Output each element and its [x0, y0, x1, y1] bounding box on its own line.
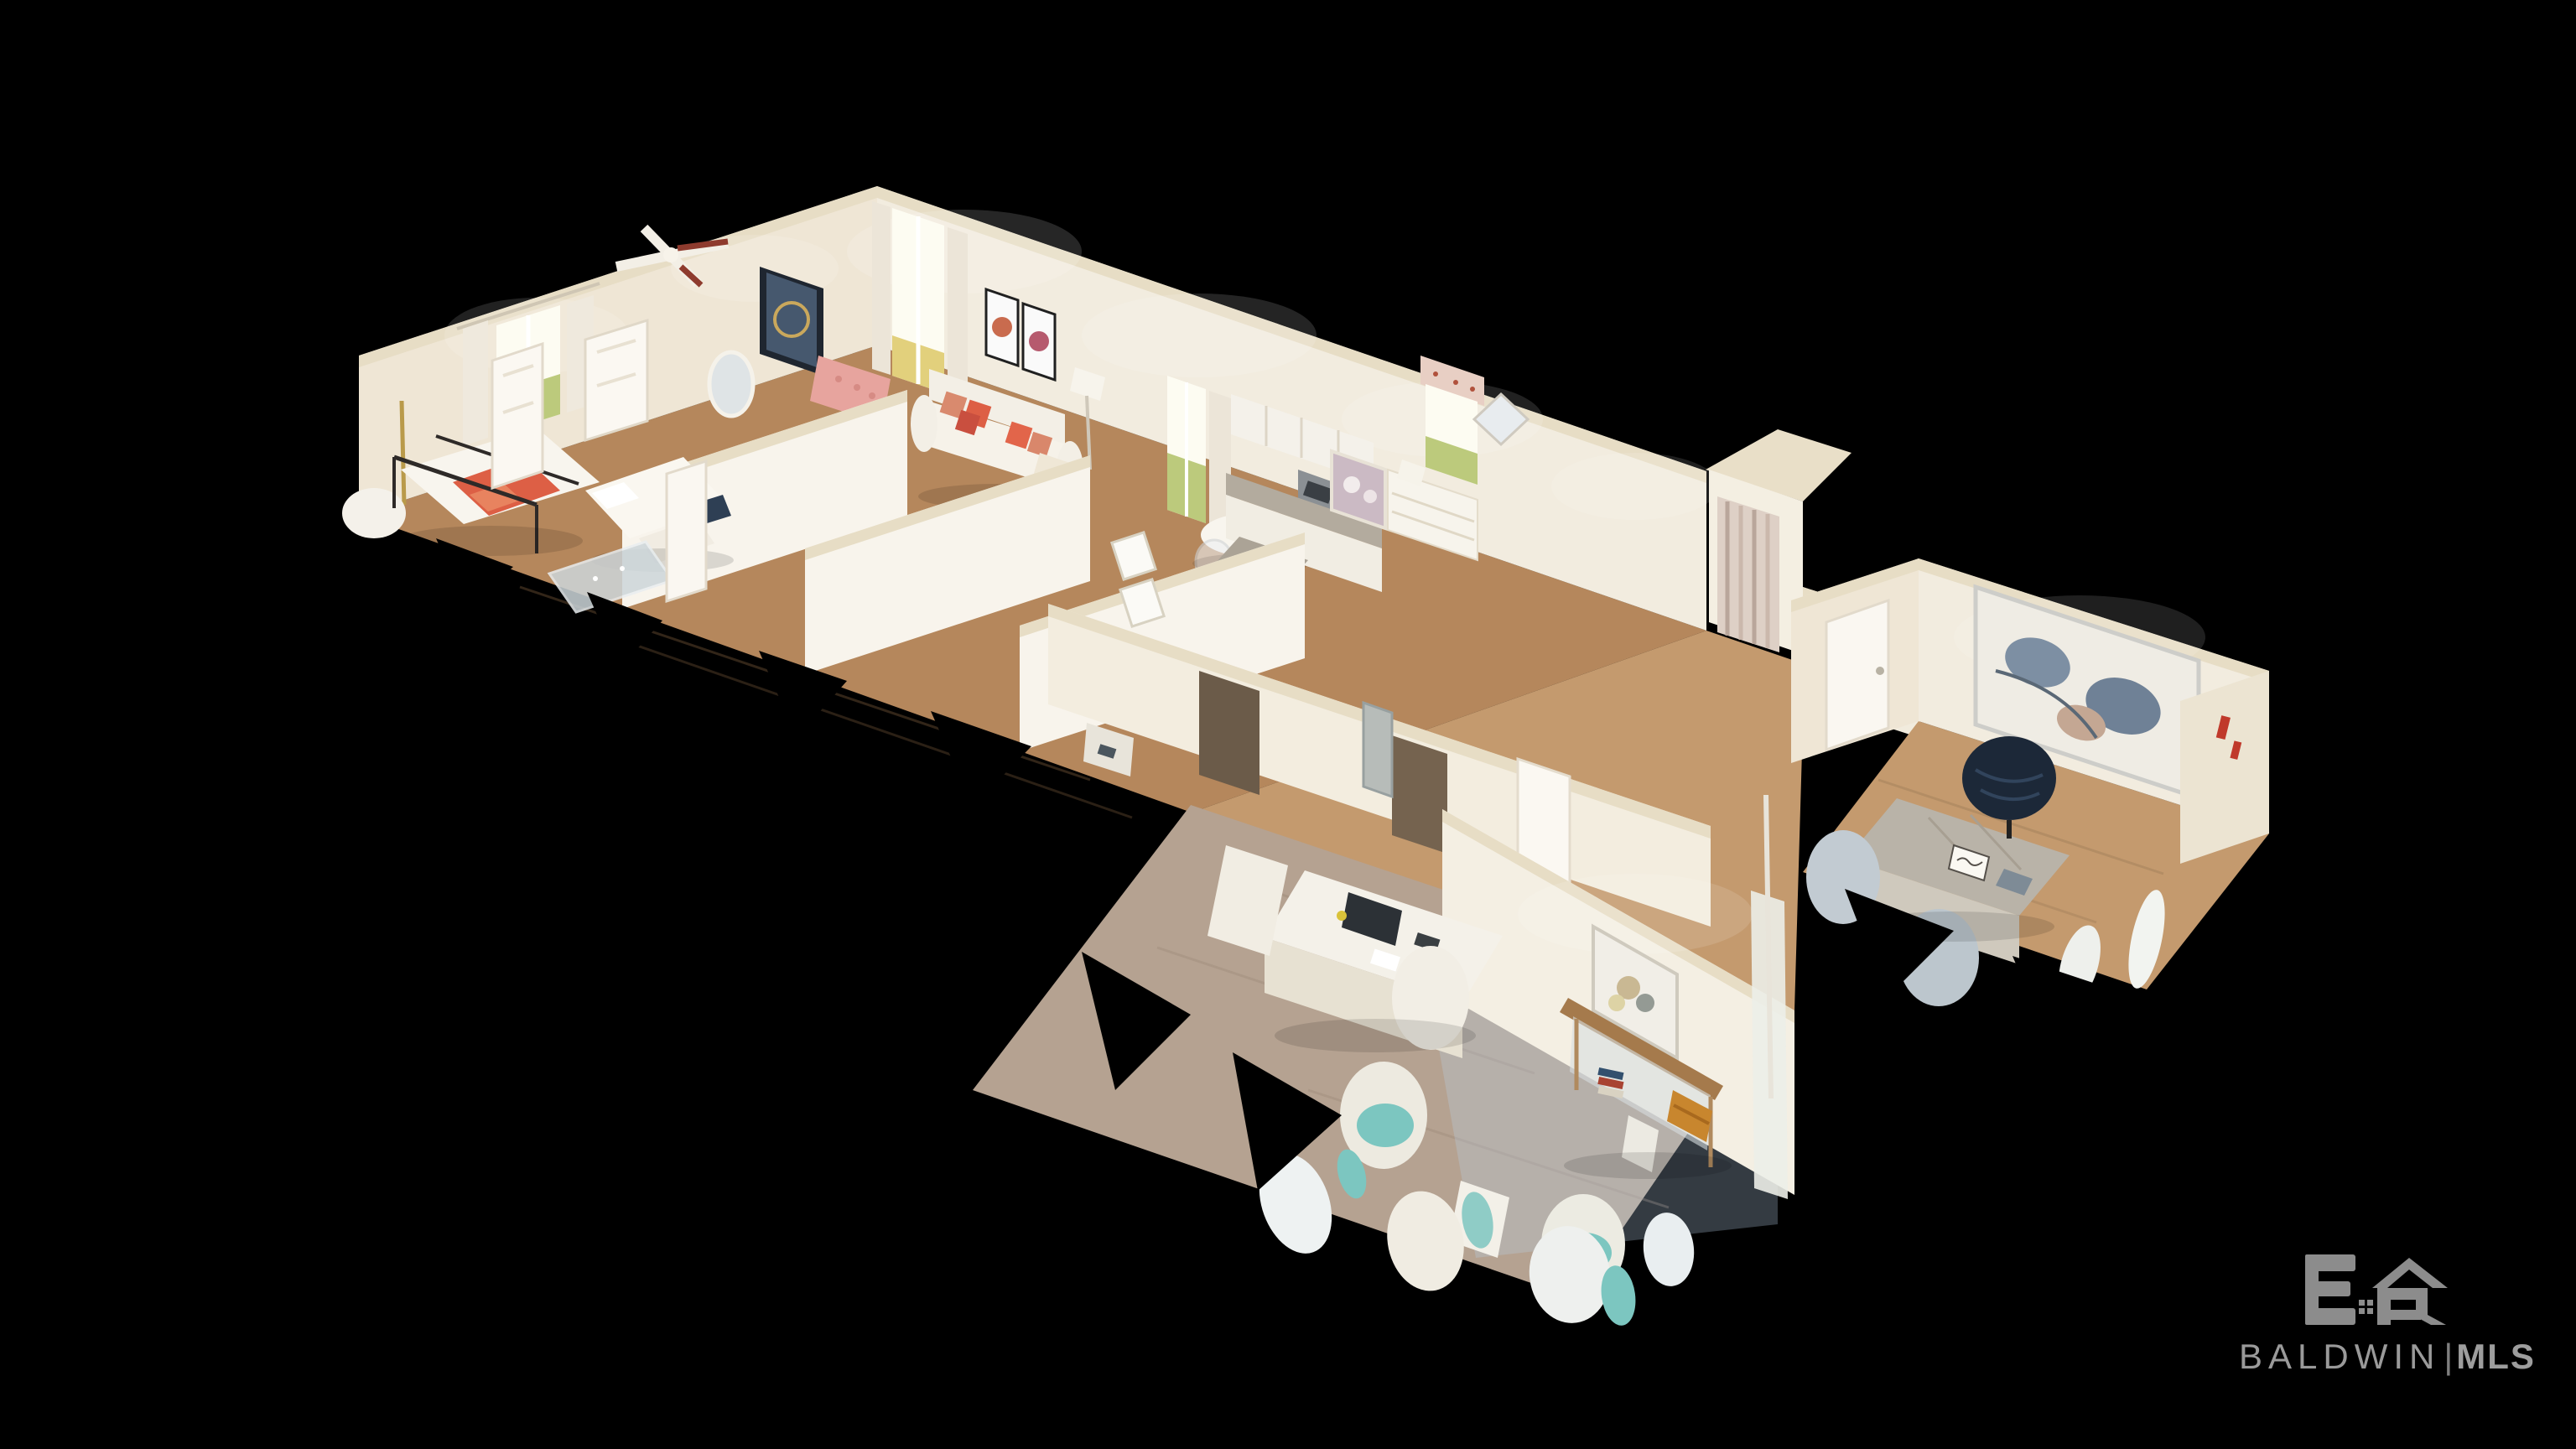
logo-b-bar: [2305, 1308, 2355, 1325]
brand-name: BALDWIN: [2239, 1337, 2440, 1376]
dollhouse-render: [0, 0, 2576, 1449]
room-office: [1791, 558, 2269, 1008]
gold-lamp-pole: [402, 401, 404, 505]
logo-window-pane: [2359, 1300, 2365, 1306]
wall-glow: [1551, 453, 1719, 520]
console-shadow: [1564, 1152, 1732, 1179]
valance-dot: [1453, 380, 1458, 385]
butterfly-1: [992, 317, 1012, 337]
standing-door: [667, 461, 706, 601]
valance-dot: [1433, 371, 1438, 377]
armchair-pattern: [835, 376, 842, 382]
bouquet-bloom: [1608, 995, 1625, 1011]
wall-glow: [1518, 874, 1753, 954]
logo-window-pane: [2359, 1308, 2365, 1314]
lounge-chair: [342, 488, 406, 538]
logo-roof: [2372, 1258, 2448, 1288]
fan-hub: [663, 247, 678, 262]
teal-chair-seat: [1357, 1104, 1414, 1147]
sofa-arm: [911, 395, 937, 452]
logo-window-pane: [2367, 1300, 2373, 1306]
floral-bloom: [1343, 476, 1360, 493]
logo-b-bar: [2305, 1254, 2355, 1271]
office-right-wall: [2180, 671, 2269, 864]
logo-window-pane: [2367, 1308, 2373, 1314]
electrical-panel: [1363, 703, 1392, 797]
hall-doorway: [1199, 671, 1259, 795]
door-knob: [1876, 667, 1884, 675]
executive-chair: [1962, 736, 2056, 820]
sticky-note: [1337, 911, 1347, 921]
living-curtain-left: [872, 201, 891, 375]
bed-shadow: [398, 526, 583, 556]
standing-door: [492, 344, 543, 488]
glass-sparkle: [620, 566, 625, 571]
brand-org: MLS: [2456, 1337, 2536, 1376]
curtain-panel-left: [463, 320, 488, 446]
armchair-pattern: [854, 384, 860, 391]
wall-mirror: [709, 352, 753, 416]
hall-doorway: [1392, 735, 1447, 854]
glass-sparkle: [593, 576, 598, 581]
butterfly-2: [1029, 331, 1049, 351]
baldwin-mls-watermark: BALDWIN|MLS: [2227, 1248, 2504, 1390]
br-logo-icon: [2227, 1248, 2495, 1332]
dollhouse-viewport[interactable]: BALDWIN|MLS: [0, 0, 2576, 1449]
armchair-pattern: [869, 392, 875, 399]
living-curtain-right: [948, 227, 968, 402]
valance-dot: [1470, 387, 1475, 392]
desk-shadow: [1275, 1019, 1476, 1052]
brand-divider: |: [2444, 1337, 2453, 1376]
wall-glow: [1082, 293, 1317, 377]
office-door: [1826, 600, 1888, 750]
bouquet-bloom: [1636, 994, 1654, 1012]
brand-line: BALDWIN|MLS: [2227, 1337, 2504, 1377]
logo-b-bar: [2305, 1281, 2350, 1296]
floral-bloom: [1363, 490, 1377, 503]
